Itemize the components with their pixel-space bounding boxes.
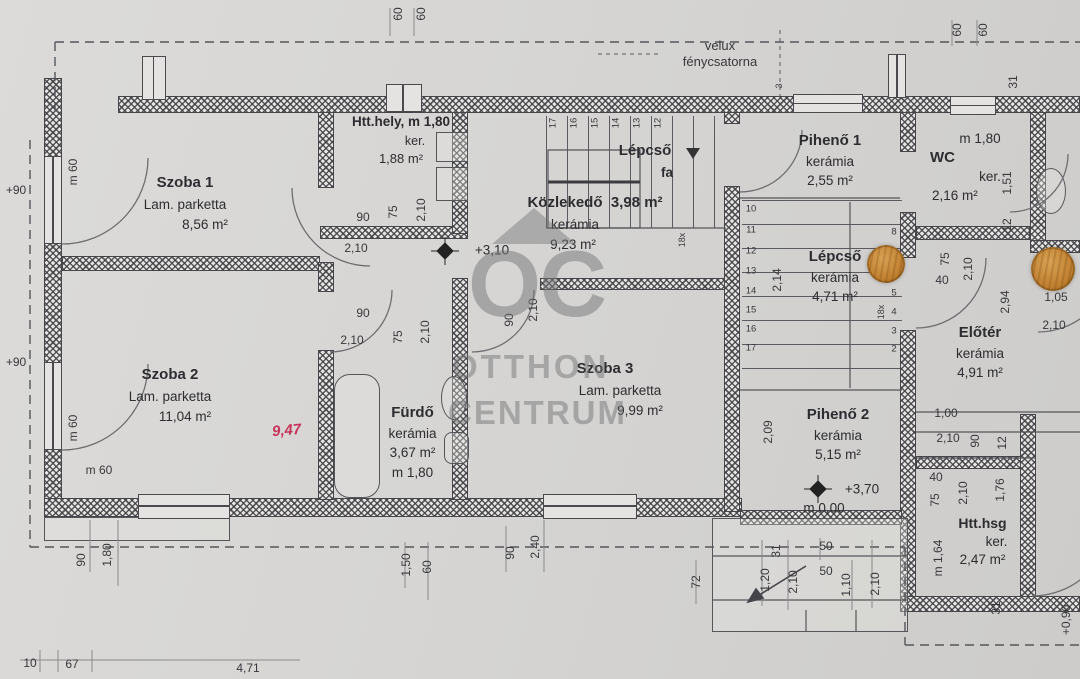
- wall: [724, 112, 740, 124]
- dim-label: 2,10: [340, 333, 363, 347]
- room-name: Fürdő: [360, 402, 465, 424]
- dim-label: 2,10: [418, 320, 432, 343]
- window: [543, 494, 637, 519]
- dim-label: 50: [819, 539, 832, 553]
- room-szoba2: Szoba 2 Lam. parketta 11,04 m²: [95, 364, 245, 427]
- room-area: 2,55 m²: [770, 171, 890, 191]
- dim-label: 90: [74, 553, 88, 566]
- room-area: 4,91 m²: [920, 363, 1040, 383]
- stair-number: 5: [891, 288, 896, 299]
- dim-label: 75: [391, 330, 405, 343]
- stair-number: 17: [746, 343, 757, 354]
- dim-label: 90: [503, 546, 517, 559]
- room-floor: Lam. parketta: [95, 387, 245, 407]
- stair-material: fa: [600, 163, 690, 183]
- room-area: 9,23 m²: [495, 235, 695, 255]
- stair-number: 13: [746, 266, 757, 277]
- wall: [318, 262, 334, 292]
- punch-hole: [1031, 247, 1075, 291]
- window: [793, 94, 863, 113]
- room-floor: kerámia: [920, 344, 1040, 364]
- wall: [318, 350, 334, 500]
- room-floor: kerámia: [778, 426, 898, 446]
- room-floor: ker.: [930, 533, 1035, 551]
- room-name: Szoba 3: [530, 358, 680, 381]
- room-floor: Lam. parketta: [530, 381, 680, 401]
- dim-label: 10: [23, 656, 36, 670]
- window: [888, 54, 906, 98]
- wall: [916, 456, 1034, 469]
- dim-label: 1,20: [758, 568, 772, 591]
- stair-number: 4: [891, 307, 896, 318]
- stair-number: 15: [590, 118, 601, 129]
- dim-label: 90: [502, 313, 516, 326]
- room-area: 2,47 m²: [930, 551, 1035, 569]
- dim-label: 2,10: [961, 257, 975, 280]
- dim-label: 60: [414, 7, 428, 20]
- wall: [118, 96, 1080, 113]
- stair-number: 12: [653, 118, 664, 129]
- stair-number: 16: [569, 118, 580, 129]
- level-label-piheno2: +3,70: [845, 482, 879, 497]
- stair-number: 11: [746, 225, 756, 236]
- room-eloter: Előtér kerámia 4,91 m²: [920, 322, 1040, 383]
- stair-number: 2: [891, 344, 896, 355]
- dim-label: 2,10: [344, 241, 367, 255]
- dim-label: 2,10: [956, 481, 970, 504]
- stair-number: 16: [746, 324, 757, 335]
- room-lepcso-fa: Lépcső fa: [600, 140, 690, 183]
- dim-label: m 1,64: [931, 540, 945, 577]
- room-piheno2: Pihenő 2 kerámia 5,15 m²: [778, 404, 898, 465]
- dim-label: 12: [1000, 218, 1014, 231]
- window: [142, 56, 166, 100]
- dim-label: 1,76: [993, 478, 1007, 501]
- dim-label: 2,94: [998, 290, 1012, 313]
- stair-number: 14: [611, 118, 622, 129]
- room-name: Közlekedő: [527, 194, 602, 211]
- dim-label: 1,51: [1000, 171, 1014, 194]
- stair-number: 14: [746, 286, 757, 297]
- room-floor: kerámia: [360, 424, 465, 444]
- room-name: Szoba 1: [110, 172, 260, 195]
- handwritten-area-note: 9,47: [271, 421, 302, 440]
- dim-label: 60: [950, 23, 964, 36]
- stair-number: 8: [891, 227, 896, 238]
- roof-note: velux fénycsatorna: [655, 38, 785, 71]
- room-name: Pihenő 1: [770, 130, 890, 152]
- dim-label: 31: [989, 601, 1003, 614]
- dim-label: 90: [968, 434, 982, 447]
- dim-label: 1,05: [1044, 290, 1067, 304]
- dim-label: 12: [995, 436, 1009, 449]
- terrace-step: [44, 517, 230, 541]
- dim-label: 40: [929, 470, 942, 484]
- stair-number: 17: [548, 118, 559, 129]
- dim-label: 90: [356, 306, 369, 320]
- window: [386, 84, 422, 112]
- roof-note-line2: fénycsatorna: [655, 54, 785, 70]
- room-name: Pihenő 2: [778, 404, 898, 426]
- dim-label: 2,40: [528, 535, 542, 558]
- stair-number: 3: [891, 326, 896, 337]
- dim-label: +90: [6, 355, 26, 369]
- window: [44, 362, 62, 450]
- dim-label: 2,10: [526, 298, 540, 321]
- room-szoba1: Szoba 1 Lam. parketta 8,56 m²: [110, 172, 260, 235]
- stair-number: 10: [746, 204, 757, 215]
- room-height: m 1,80: [920, 130, 1030, 148]
- htthely-appliance-2: [436, 167, 468, 201]
- room-floor: ker.: [326, 132, 476, 150]
- dim-label: m 60: [86, 463, 113, 477]
- dim-label: m 60: [66, 415, 80, 442]
- dim-label: 31: [769, 544, 783, 557]
- room-name: Szoba 2: [95, 364, 245, 387]
- dim-label: 2,10: [936, 431, 959, 445]
- dim-label: 50: [819, 564, 832, 578]
- room-area: 1,88 m²: [326, 150, 476, 169]
- room-floor: kerámia: [770, 152, 890, 172]
- dim-label: 2,14: [770, 268, 784, 291]
- room-piheno1: Pihenő 1 kerámia 2,55 m²: [770, 130, 890, 191]
- room-area-top: 3,98 m²: [611, 194, 663, 211]
- wall: [320, 226, 468, 239]
- dim-label: 2,10: [414, 198, 428, 221]
- room-name: Htt.hsg: [930, 514, 1035, 533]
- room-htthsg: Htt.hsg ker. 2,47 m²: [930, 514, 1035, 569]
- wc-toilet: [1036, 168, 1066, 214]
- dim-label: 2,10: [868, 572, 882, 595]
- room-floor: kerámia: [495, 215, 695, 235]
- dim-label: 1,10: [839, 573, 853, 596]
- dim-label: 18x: [677, 233, 687, 248]
- dim-label: 60: [420, 560, 434, 573]
- roof-note-line1: velux: [655, 38, 785, 54]
- dim-label: 72: [689, 575, 703, 588]
- dim-label: 2,10: [1042, 318, 1065, 332]
- dim-label: 1,80: [100, 543, 114, 566]
- dim-label: 18x: [876, 305, 886, 320]
- room-szoba3: Szoba 3 Lam. parketta 9,99 m²: [530, 358, 680, 421]
- room-name: WC: [920, 148, 1030, 168]
- room-htthely: Htt.hely, m 1,80 ker. 1,88 m²: [326, 112, 476, 169]
- dim-label: 75: [938, 252, 952, 265]
- room-area: 8,56 m²: [110, 215, 260, 235]
- stair-number: 15: [746, 305, 757, 316]
- dim-label: 3: [774, 83, 784, 88]
- punch-hole: [867, 245, 905, 283]
- wall: [900, 212, 916, 258]
- stair-number: 12: [746, 246, 757, 257]
- stair-down-arrow-icon: [686, 148, 700, 159]
- room-floor: Lam. parketta: [110, 195, 260, 215]
- dim-label: 60: [391, 7, 405, 20]
- wall: [1020, 414, 1036, 610]
- dim-label: 40: [935, 273, 948, 287]
- dim-label: 75: [928, 493, 942, 506]
- dim-label: 1,00: [934, 406, 957, 420]
- window: [138, 494, 230, 519]
- window: [950, 96, 996, 115]
- room-furdo: Fürdő kerámia 3,67 m² m 1,80: [360, 402, 465, 482]
- window: [44, 156, 62, 244]
- wall: [540, 278, 730, 290]
- room-area: 4,71 m²: [790, 287, 880, 307]
- room-area: 3,67 m²: [360, 443, 465, 463]
- dim-label: 75: [386, 205, 400, 218]
- level-base-label-piheno2: m 0,00: [803, 501, 844, 516]
- stair-number: 13: [632, 118, 643, 129]
- dim-label: 1,50: [399, 553, 413, 576]
- dim-label: 60: [976, 23, 990, 36]
- dim-label: 67: [65, 657, 78, 671]
- dim-label: 90: [356, 210, 369, 224]
- room-area: 5,15 m²: [778, 445, 898, 465]
- level-label-kozlekedo: +3,10: [475, 243, 509, 258]
- room-kozlekedo: Közlekedő 3,98 m² kerámia 9,23 m²: [495, 192, 695, 255]
- dim-label: 4,71: [236, 661, 259, 675]
- dim-label: 2,09: [761, 420, 775, 443]
- wall: [724, 186, 740, 512]
- room-name: Htt.hely, m 1,80: [326, 112, 476, 132]
- room-area: 11,04 m²: [95, 407, 245, 427]
- room-area: 9,99 m²: [530, 401, 680, 421]
- room-lepcso-keramia: Lépcső kerámia 4,71 m²: [790, 246, 880, 307]
- room-height: m 1,80: [360, 463, 465, 483]
- dim-label: +90: [6, 183, 26, 197]
- dim-label: m 60: [66, 159, 80, 186]
- room-name: Lépcső: [600, 140, 690, 163]
- dim-label: 2,10: [786, 570, 800, 593]
- dim-label: +0,90: [1059, 605, 1073, 635]
- wall: [62, 256, 320, 271]
- wall: [900, 112, 916, 152]
- room-name: Előtér: [920, 322, 1040, 344]
- floor-plan-canvas: velux fénycsatorna Szoba 1 Lam. parketta…: [0, 0, 1080, 679]
- dim-label: 31: [1006, 75, 1020, 88]
- room-floor: kerámia: [790, 268, 880, 288]
